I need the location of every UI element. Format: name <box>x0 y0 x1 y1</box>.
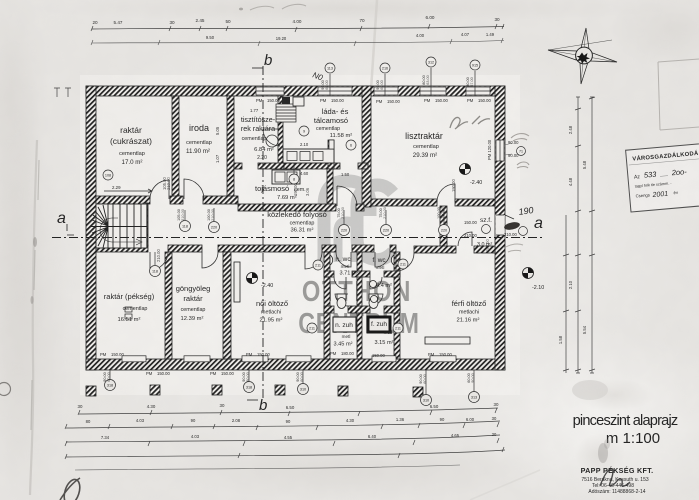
svg-text:220: 220 <box>383 229 389 233</box>
svg-text:310: 310 <box>423 399 429 403</box>
svg-text:metl: metl <box>376 265 385 270</box>
svg-text:3.45 m²: 3.45 m² <box>334 342 353 348</box>
svg-text:60.00: 60.00 <box>325 80 329 90</box>
svg-text:közlekedő folyosó: közlekedő folyosó <box>267 210 327 219</box>
svg-text:318: 318 <box>246 386 252 390</box>
svg-text:6.00: 6.00 <box>426 15 435 20</box>
svg-text:cementlap: cementlap <box>181 307 206 313</box>
svg-text:raktár (pékség): raktár (pékség) <box>104 292 155 301</box>
svg-text:7.34: 7.34 <box>101 435 110 440</box>
svg-text:150.00: 150.00 <box>372 353 385 358</box>
svg-text:533: 533 <box>643 170 657 180</box>
svg-text:318: 318 <box>107 384 113 388</box>
svg-text:cementlap: cementlap <box>186 140 212 146</box>
svg-text:60.00: 60.00 <box>300 372 304 382</box>
svg-text:3.06: 3.06 <box>305 187 310 196</box>
svg-text:2.45: 2.45 <box>196 18 205 23</box>
svg-text:PM: PM <box>424 98 431 103</box>
svg-text:5.54: 5.54 <box>582 325 587 334</box>
svg-text:150.00: 150.00 <box>111 352 124 357</box>
svg-text:19.20: 19.20 <box>276 36 287 41</box>
svg-text:göngyöleg: göngyöleg <box>176 284 211 293</box>
svg-text:4.55: 4.55 <box>284 435 293 440</box>
svg-text:metl: metl <box>341 264 350 269</box>
svg-text:150.00: 150.00 <box>464 220 477 225</box>
svg-text:4.30: 4.30 <box>147 404 156 409</box>
svg-text:metlachi: metlachi <box>261 310 281 316</box>
svg-text:iroda: iroda <box>189 123 209 133</box>
svg-text:150.00: 150.00 <box>257 352 270 357</box>
svg-text:11.90 m²: 11.90 m² <box>186 148 210 155</box>
svg-text:6.84 m²: 6.84 m² <box>254 147 274 153</box>
svg-text:PM: PM <box>246 352 253 357</box>
svg-text:210.00: 210.00 <box>181 209 185 221</box>
svg-text:211: 211 <box>309 327 315 331</box>
svg-text:915: 915 <box>472 64 478 68</box>
svg-text:4.03: 4.03 <box>191 434 200 439</box>
svg-text:60.00: 60.00 <box>246 372 250 382</box>
svg-text:sz.f.: sz.f. <box>480 217 492 224</box>
svg-text:5.05: 5.05 <box>215 126 220 135</box>
svg-text:Adószám: 11488868-2-14: Adószám: 11488868-2-14 <box>588 489 645 495</box>
svg-text:-2.10: -2.10 <box>532 285 544 291</box>
svg-text:láda- és: láda- és <box>322 107 349 116</box>
svg-text:PM: PM <box>467 98 474 103</box>
svg-text:metl: metl <box>342 334 351 339</box>
svg-text:3.15 m²: 3.15 m² <box>375 340 394 346</box>
svg-text:n. zuh: n. zuh <box>335 322 353 329</box>
svg-text:71: 71 <box>519 150 523 154</box>
svg-text:16.51 m²: 16.51 m² <box>118 317 141 323</box>
svg-text:30: 30 <box>492 432 497 437</box>
svg-text:210.00: 210.00 <box>156 249 161 262</box>
svg-text:PM: PM <box>100 352 107 357</box>
svg-text:2.48: 2.48 <box>568 125 573 134</box>
svg-text:30: 30 <box>78 404 83 409</box>
svg-text:2.10: 2.10 <box>300 142 309 147</box>
svg-text:180.00: 180.00 <box>341 351 354 356</box>
svg-text:220: 220 <box>341 229 347 233</box>
svg-text:118: 118 <box>182 225 188 229</box>
svg-text:220: 220 <box>211 226 217 230</box>
svg-text:8: 8 <box>293 178 295 182</box>
svg-text:m 1:100: m 1:100 <box>606 430 660 447</box>
svg-text:1.36: 1.36 <box>396 417 405 422</box>
svg-text:20: 20 <box>92 20 98 25</box>
svg-text:17.0 m²: 17.0 m² <box>122 159 143 166</box>
svg-text:a: a <box>534 215 543 232</box>
svg-text:29.39 m²: 29.39 m² <box>413 152 437 159</box>
svg-text:a: a <box>57 210 66 227</box>
svg-text:210.00: 210.00 <box>341 207 345 219</box>
svg-text:21.16 m²: 21.16 m² <box>457 318 480 324</box>
svg-text:113: 113 <box>327 67 333 71</box>
svg-text:210.00: 210.00 <box>441 207 445 219</box>
svg-text:lisztraktár: lisztraktár <box>405 131 443 141</box>
svg-text:150.00: 150.00 <box>478 98 491 103</box>
svg-text:30: 30 <box>220 403 225 408</box>
svg-text:metl: metl <box>384 330 393 335</box>
svg-text:4.60: 4.60 <box>300 171 309 176</box>
svg-text:4.48: 4.48 <box>568 177 573 186</box>
svg-text:190.00: 190.00 <box>451 179 456 192</box>
svg-text:raktár: raktár <box>183 294 203 303</box>
svg-text:150.00: 150.00 <box>221 371 234 376</box>
svg-text:150.00: 150.00 <box>157 371 170 376</box>
svg-text:4.00: 4.00 <box>293 19 302 24</box>
svg-text:6.40: 6.40 <box>368 434 377 439</box>
svg-text:60.00: 60.00 <box>380 80 384 90</box>
svg-text:150.00: 150.00 <box>331 98 344 103</box>
svg-text:3.71 m²: 3.71 m² <box>340 271 359 277</box>
svg-text:férfi öltöző: férfi öltöző <box>452 299 487 308</box>
svg-text:PM: PM <box>256 98 263 103</box>
svg-text:90: 90 <box>440 417 445 422</box>
svg-text:4.00: 4.00 <box>416 33 425 38</box>
svg-text:PM: PM <box>320 98 327 103</box>
svg-text:PM 120.00: PM 120.00 <box>487 139 492 160</box>
svg-text:2.08: 2.08 <box>232 418 241 423</box>
svg-text:211: 211 <box>400 263 406 267</box>
svg-text:312: 312 <box>428 61 434 65</box>
svg-text:2.20: 2.20 <box>257 155 267 161</box>
svg-text:tisztítósze-: tisztítósze- <box>241 115 276 124</box>
svg-text:cementlap: cementlap <box>119 151 145 157</box>
svg-text:90: 90 <box>286 419 291 424</box>
svg-text:-2.40: -2.40 <box>470 180 482 186</box>
svg-text:cementlap: cementlap <box>413 144 439 150</box>
svg-text:210.00: 210.00 <box>464 233 477 238</box>
svg-text:210.00: 210.00 <box>383 207 387 219</box>
svg-text:310: 310 <box>300 388 306 392</box>
svg-text:220: 220 <box>441 229 447 233</box>
svg-text:n. wc: n. wc <box>335 256 351 263</box>
svg-text:5.48: 5.48 <box>582 160 587 169</box>
svg-text:50: 50 <box>225 19 231 24</box>
svg-text:1.77: 1.77 <box>250 108 259 113</box>
svg-text:PM: PM <box>146 371 153 376</box>
svg-text:313: 313 <box>471 396 477 400</box>
svg-text:60.00: 60.00 <box>423 374 427 384</box>
svg-text:9.50: 9.50 <box>206 35 215 40</box>
svg-text:1.50: 1.50 <box>341 172 350 177</box>
svg-text:4.65: 4.65 <box>451 433 460 438</box>
svg-text:150.00: 150.00 <box>435 98 448 103</box>
svg-text:6.50: 6.50 <box>430 404 439 409</box>
svg-text:190.00: 190.00 <box>293 183 298 196</box>
svg-text:metlachi: metlachi <box>459 310 479 316</box>
svg-text:2.29: 2.29 <box>112 185 121 190</box>
svg-text:30: 30 <box>492 416 497 421</box>
svg-text:cementlap: cementlap <box>290 221 315 227</box>
svg-text:30: 30 <box>494 17 500 22</box>
svg-text:2001: 2001 <box>651 191 668 199</box>
svg-text:190: 190 <box>518 205 534 217</box>
svg-text:cementlap: cementlap <box>123 306 148 312</box>
svg-text:9: 9 <box>303 130 305 134</box>
svg-text:150.00: 150.00 <box>387 99 400 104</box>
svg-text:190.00: 190.00 <box>485 239 490 252</box>
svg-text:4.03: 4.03 <box>136 418 145 423</box>
svg-text:1.49: 1.49 <box>486 32 495 37</box>
svg-text:150.00: 150.00 <box>267 98 280 103</box>
svg-text:cementlap: cementlap <box>316 126 340 132</box>
svg-text:108: 108 <box>105 174 111 178</box>
svg-text:67.00: 67.00 <box>470 77 474 87</box>
svg-text:f. wc: f. wc <box>372 257 386 264</box>
svg-text:80: 80 <box>86 419 91 424</box>
svg-text:2оо-: 2оо- <box>670 167 687 177</box>
svg-text:210.00: 210.00 <box>504 232 517 237</box>
svg-text:női öltöző: női öltöző <box>256 299 288 308</box>
svg-text:PM: PM <box>330 351 337 356</box>
svg-text:4.30: 4.30 <box>346 418 355 423</box>
svg-text:Az: Az <box>634 174 641 181</box>
svg-text:pinceszint alaprajz: pinceszint alaprajz <box>573 413 678 429</box>
svg-text:70: 70 <box>359 18 365 23</box>
svg-text:5.47: 5.47 <box>114 20 123 25</box>
svg-text:211: 211 <box>395 327 401 331</box>
svg-text:210.00: 210.00 <box>211 209 215 221</box>
svg-text:6: 6 <box>350 144 352 148</box>
svg-text:PM: PM <box>376 99 383 104</box>
svg-text:4.07: 4.07 <box>461 32 470 37</box>
svg-text:tálcamosó: tálcamosó <box>314 116 348 125</box>
svg-text:36.31 m²: 36.31 m² <box>291 228 314 234</box>
svg-text:210.00: 210.00 <box>166 177 171 190</box>
svg-text:60.00: 60.00 <box>107 372 111 382</box>
svg-text:63.00: 63.00 <box>426 75 430 85</box>
svg-text:rek raktára: rek raktára <box>241 124 275 133</box>
svg-text:PM: PM <box>210 371 217 376</box>
svg-text:f. zuh: f. zuh <box>371 321 387 328</box>
svg-text:raktár: raktár <box>120 125 142 135</box>
svg-text:211: 211 <box>315 264 321 268</box>
svg-text:90.00: 90.00 <box>471 373 475 383</box>
svg-text:PM: PM <box>428 352 435 357</box>
svg-text:30: 30 <box>169 20 175 25</box>
svg-text:12.39 m²: 12.39 m² <box>181 316 204 322</box>
svg-text:tojásmosó: tojásmosó <box>255 184 289 193</box>
svg-text:b: b <box>259 397 267 414</box>
svg-text:150.00: 150.00 <box>439 352 452 357</box>
svg-text:6.00: 6.00 <box>466 417 475 422</box>
svg-text:90: 90 <box>191 418 196 423</box>
svg-text:1.58: 1.58 <box>558 335 563 344</box>
svg-text:2.10: 2.10 <box>568 280 573 289</box>
svg-text:4.4 m²: 4.4 m² <box>376 283 392 289</box>
svg-text:6.50: 6.50 <box>286 405 295 410</box>
svg-text:PAPP PÉKSÉG KFT.: PAPP PÉKSÉG KFT. <box>581 466 654 475</box>
svg-text:11.58 m²: 11.58 m² <box>330 133 353 139</box>
svg-text:216: 216 <box>382 67 388 71</box>
svg-text:30: 30 <box>494 402 499 407</box>
svg-text:118: 118 <box>152 270 158 274</box>
svg-text:1.07: 1.07 <box>215 154 220 163</box>
svg-text:(cukrászat): (cukrászat) <box>110 136 152 146</box>
svg-text:b: b <box>264 52 272 69</box>
